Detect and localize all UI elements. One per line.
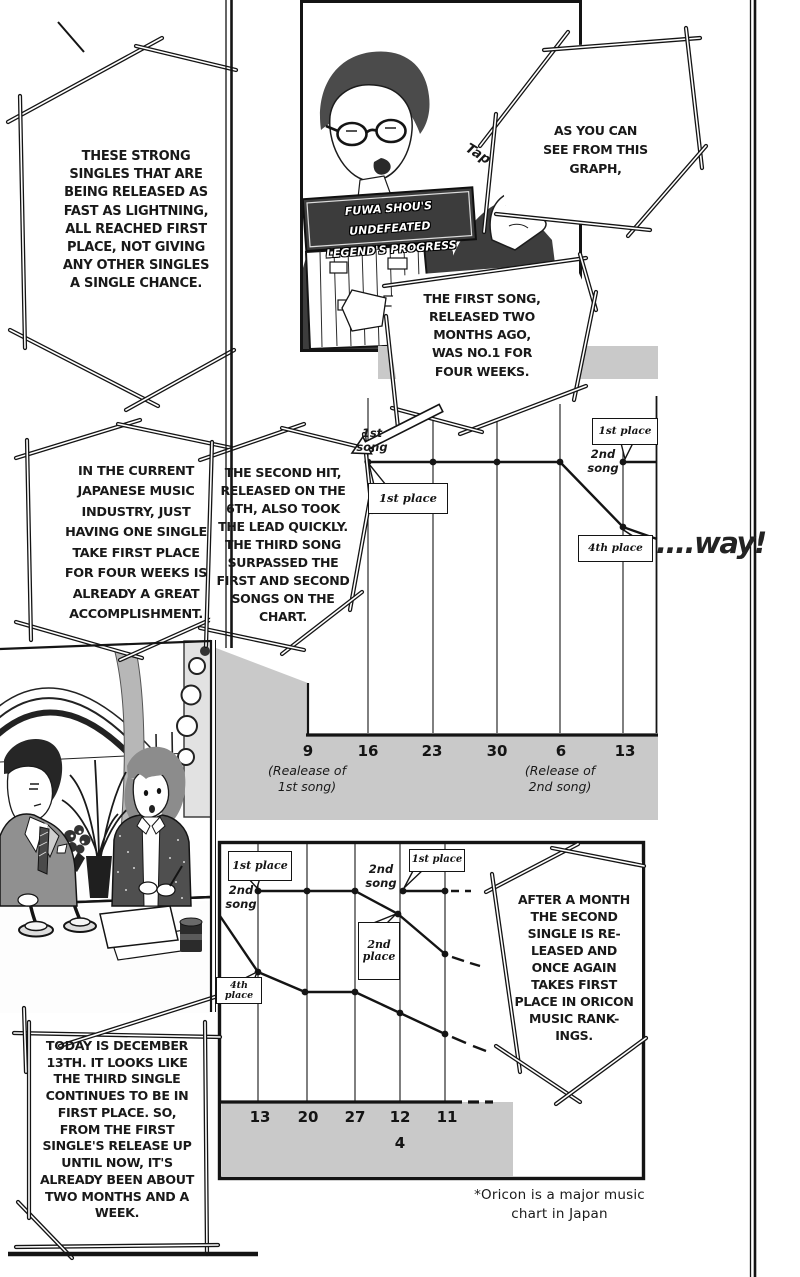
callout-1st-place: 1st place bbox=[228, 851, 292, 881]
x-tick-20: 20 bbox=[288, 1108, 328, 1126]
x-tick-6: 6 bbox=[541, 742, 581, 760]
x-tick-23: 23 bbox=[412, 742, 452, 760]
callout-1st-place: 1st place bbox=[368, 483, 448, 514]
x-tick-13: 13 bbox=[605, 742, 645, 760]
hand-label-2nd-song: 2nd song bbox=[584, 448, 622, 475]
hand-label-2nd-song: 2nd song bbox=[224, 884, 258, 911]
x-sub-tick-4: 4 bbox=[390, 1134, 410, 1152]
footnote-oricon: *Oricon is a major music chart in Japan bbox=[452, 1186, 667, 1224]
x-tick-13: 13 bbox=[240, 1108, 280, 1126]
callout-1st-place: 1st place bbox=[592, 418, 658, 445]
cup bbox=[180, 918, 202, 952]
x-tick-30: 30 bbox=[477, 742, 517, 760]
callout-4th-place: 4th place bbox=[216, 977, 262, 1004]
plant-pot bbox=[86, 856, 112, 898]
speech-bubble-after-a-month: AFTER A MONTH THE SECOND SINGLE IS RE- L… bbox=[506, 891, 642, 1044]
speech-bubble-strong-singles: THESE STRONG SINGLES THAT ARE BEING RELE… bbox=[46, 148, 226, 294]
hand-label-1st-song: 1st song bbox=[352, 427, 392, 454]
callout-2nd-place: 2nd place bbox=[358, 922, 400, 980]
release-note-2nd-song: (Release of 2nd song) bbox=[500, 763, 620, 794]
speech-bubble-industry: IN THE CURRENT JAPANESE MUSIC INDUSTRY, … bbox=[48, 462, 224, 626]
x-tick-27: 27 bbox=[335, 1108, 375, 1126]
speech-bubble-as-you-can-see: AS YOU CAN SEE FROM THIS GRAPH, bbox=[518, 122, 673, 178]
sign-board-text: FUWA SHOU'S UNDEFEATED LEGEND'S PROGRESS bbox=[303, 193, 477, 266]
x-tick-16: 16 bbox=[348, 742, 388, 760]
speech-bubble-second-hit: THE SECOND HIT, RELEASED ON THE 6TH, ALS… bbox=[212, 464, 354, 626]
hand-label-2nd-song: 2nd song bbox=[364, 863, 398, 890]
manga-page: THESE STRONG SINGLES THAT ARE BEING RELE… bbox=[0, 0, 800, 1277]
x-tick-11: 11 bbox=[427, 1108, 467, 1126]
studio-scene-panel bbox=[0, 640, 212, 1013]
speech-bubble-today: TODAY IS DECEMBER 13TH. IT LOOKS LIKE TH… bbox=[28, 1038, 206, 1222]
callout-1st-place: 1st place bbox=[409, 849, 465, 872]
callout-4th-place: 4th place bbox=[578, 535, 653, 562]
x-tick-12: 12 bbox=[380, 1108, 420, 1126]
release-note-1st-song: (Realease of 1st song) bbox=[247, 763, 367, 794]
sfx-way: ....way! bbox=[656, 526, 776, 560]
speech-bubble-first-song: THE FIRST SONG, RELEASED TWO MONTHS AGO,… bbox=[402, 290, 562, 381]
x-tick-9: 9 bbox=[288, 742, 328, 760]
